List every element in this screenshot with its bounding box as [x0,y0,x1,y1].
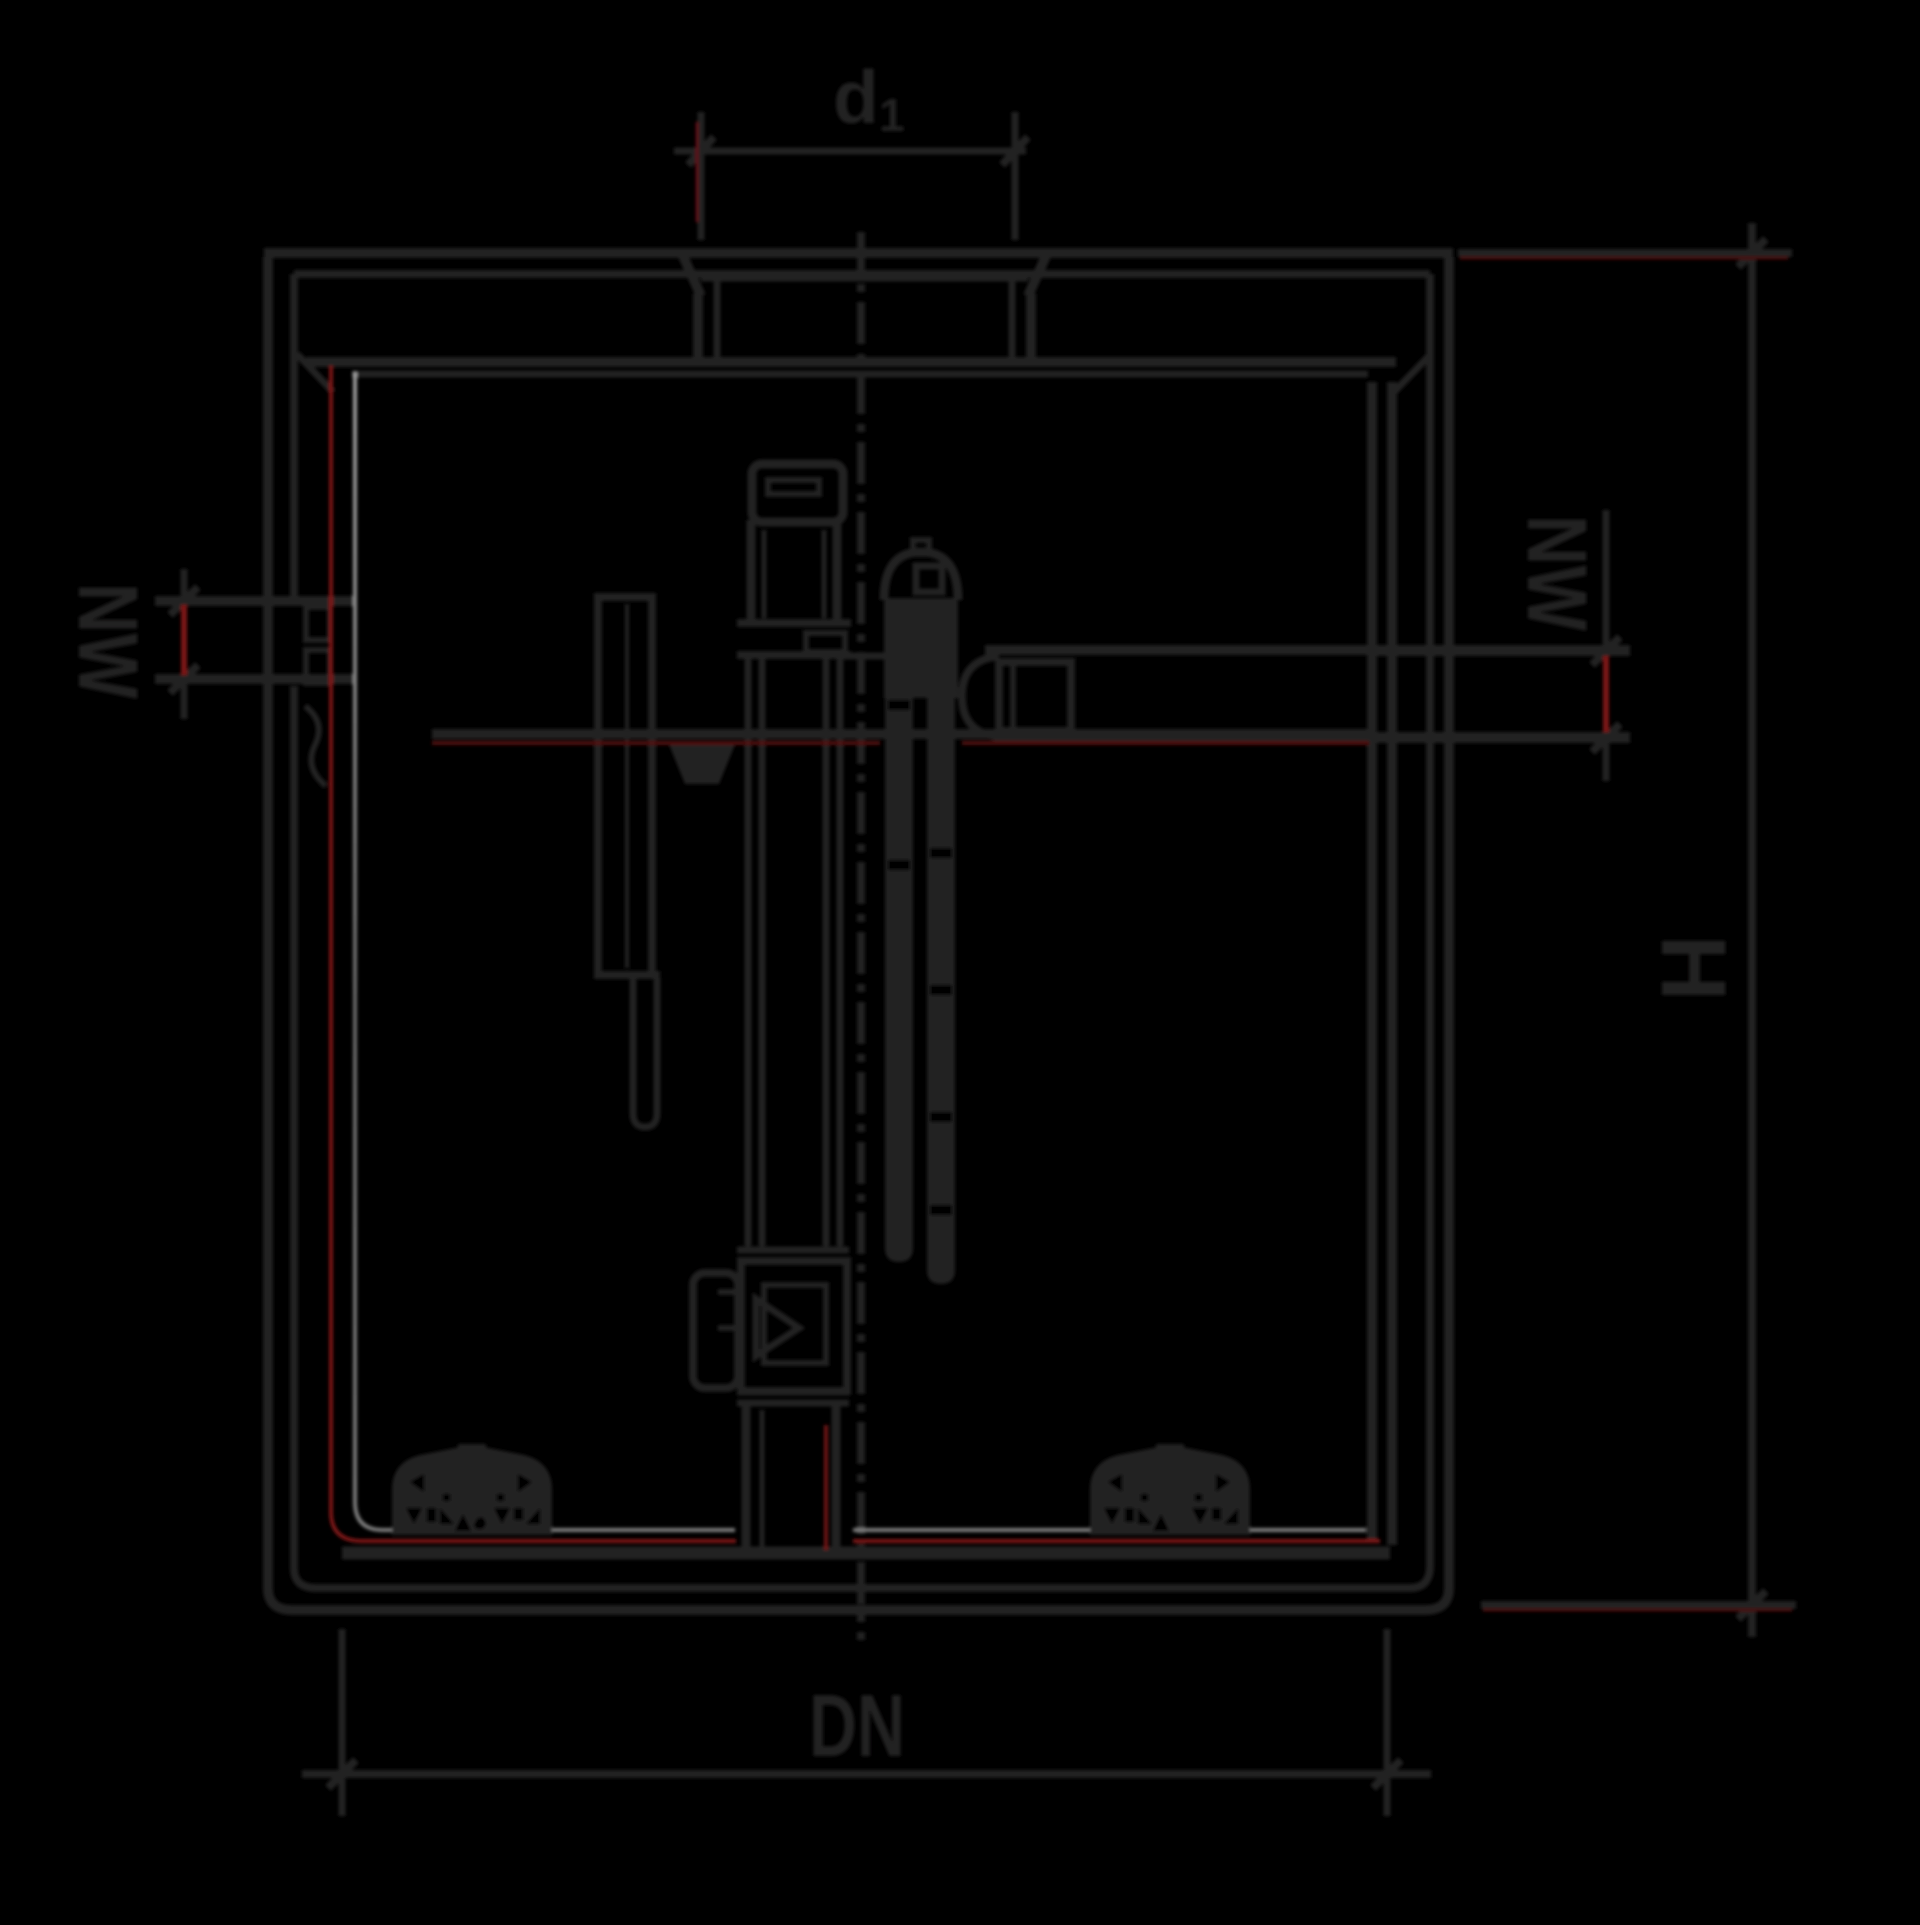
svg-text:H: H [1642,935,1744,1001]
svg-text:d: d [833,55,879,139]
svg-text:1: 1 [879,89,905,141]
svg-text:NW: NW [61,583,155,700]
svg-text:DN: DN [809,1676,905,1775]
svg-text:NW: NW [1510,515,1604,632]
